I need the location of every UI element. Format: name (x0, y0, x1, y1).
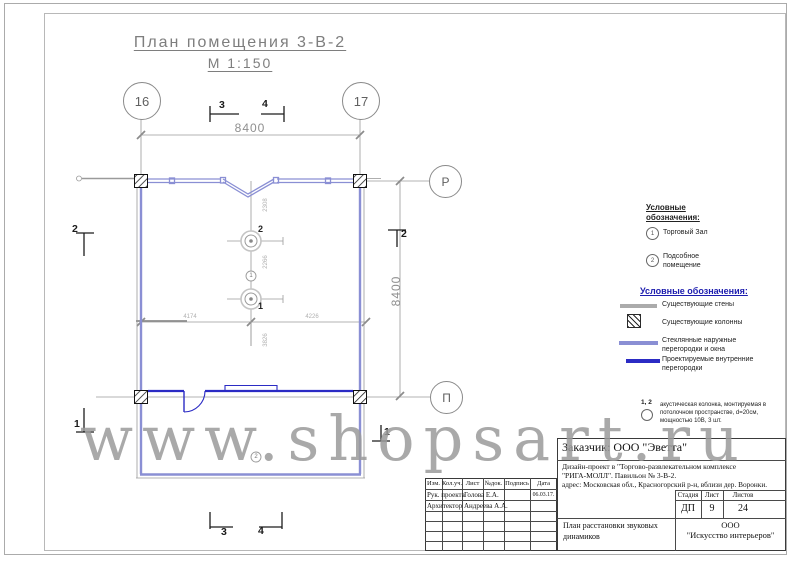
col-podpis: Подпись (504, 480, 530, 487)
row2-role: Архитектор (427, 502, 462, 510)
legend-rooms-header: Условные обозначения: (646, 203, 720, 223)
section-label-bottom-3: 3 (221, 526, 227, 538)
legend-column-label: Существующие колонны (662, 319, 742, 326)
row1-date: 06.03.17. (530, 492, 557, 498)
note-speaker-circle (641, 409, 653, 421)
grid-bubble-p: П (430, 381, 463, 414)
drawing-sheet: План помещения 3-В-2 М 1:150 16 17 Р П 8… (0, 0, 794, 561)
grid-bubble-16: 16 (123, 82, 161, 120)
note-numbers: 1, 2 (641, 399, 652, 406)
section-label-bottom-4: 4 (258, 525, 264, 537)
drawing-scale: М 1:150 (100, 55, 380, 71)
drawing-title: План помещения 3-В-2 (100, 34, 380, 52)
row2-name: Андреева А.А. (464, 502, 508, 510)
side-walls (140, 183, 361, 475)
speaker-label-1: 1 (258, 301, 263, 311)
row1-name: Голова Е.А. (464, 491, 499, 499)
sheets-label: Листов (723, 492, 763, 499)
storefront-glazing (148, 178, 353, 198)
col-ndok: №док. (483, 480, 504, 487)
section-label-left-2: 2 (72, 223, 78, 235)
legend-room-2-num: 2 (651, 258, 654, 264)
section-label-left-1: 1 (74, 418, 80, 430)
legend-partition-swatch (626, 359, 660, 363)
note-text: акустическая колонка, монтируемая в пото… (660, 401, 788, 425)
legend-room-1-label: Торговый Зал (663, 229, 708, 236)
dim-inner-v3: 3826 (263, 324, 269, 356)
section-label-right-2: 2 (401, 228, 407, 240)
dim-inner-v2: 2266 (263, 246, 269, 278)
legend-room-1-num: 1 (651, 231, 654, 237)
legend-room-2-circle: 2 (646, 254, 659, 267)
legend-existing-wall-label: Существующие стены (662, 301, 734, 308)
speaker-label-2: 2 (258, 224, 263, 234)
legend-column-swatch (627, 314, 641, 328)
col-data: Дата (530, 480, 557, 487)
legend-glazing-label: Стеклянные наружные перегородки и окна (662, 336, 757, 354)
grid-bubble-17: 17 (342, 82, 380, 120)
interior-partition (148, 386, 353, 413)
grid-label-p: П (442, 391, 451, 405)
grid-label-17: 17 (354, 94, 368, 109)
legend-glazing-swatch (619, 341, 658, 345)
legend-room-1-circle: 1 (646, 227, 659, 240)
door-swing-arc (184, 391, 205, 412)
project-line-2: "РИГА-МОЛЛ". Павильон № 3-В-2. (562, 471, 676, 480)
section-label-top-3: 3 (219, 99, 225, 111)
existing-walls (136, 183, 365, 478)
doc-title: План расстановки звуковых динамиков (563, 521, 673, 543)
legend-walls-header: Условные обозначения: (640, 286, 748, 296)
legend-existing-wall-swatch (620, 304, 657, 308)
section-label-right-1: 1 (384, 426, 390, 438)
col-list: Лист (462, 480, 483, 487)
room-number-1: 1 (244, 273, 258, 279)
room-number-2: 2 (249, 454, 263, 460)
sheet-value: 9 (701, 503, 723, 514)
company-line-2: "Искусство интерьеров" (675, 530, 786, 540)
col-izm: Изм. (425, 480, 442, 487)
stage-label: Стадия (675, 492, 701, 499)
col-koluch: Кол.уч. (442, 480, 462, 487)
speaker-symbols (227, 231, 283, 309)
sheets-value: 24 (723, 503, 763, 514)
grid-bubble-r: Р (429, 165, 462, 198)
section-label-top-4: 4 (262, 98, 268, 110)
project-line-3: адрес: Московская обл., Красногорский р-… (562, 480, 767, 489)
project-line-1: Дизайн-проект в "Торгово-развлекательном… (562, 462, 736, 471)
dim-right-8400: 8400 (389, 251, 403, 331)
legend-partition-label: Проектируемые внутренние перегородки (662, 355, 757, 373)
client-name: Заказчик: ООО "Эветта" (562, 440, 687, 455)
dim-inner-left: 4174 (170, 314, 210, 320)
row1-role: Рук. проекта (427, 491, 465, 499)
grid-axes (77, 118, 431, 397)
section-marks (76, 106, 406, 529)
dim-inner-right: 4226 (292, 314, 332, 320)
stage-value: ДП (675, 503, 701, 514)
legend-room-2-label: Подсобное помещение (663, 252, 721, 270)
grid-label-r: Р (441, 175, 449, 189)
dim-inner-v1: 2308 (263, 189, 269, 221)
company-line-1: ООО (675, 520, 786, 530)
dim-top-8400: 8400 (213, 121, 287, 135)
sheet-label: Лист (701, 492, 723, 499)
grid-label-16: 16 (135, 94, 149, 109)
